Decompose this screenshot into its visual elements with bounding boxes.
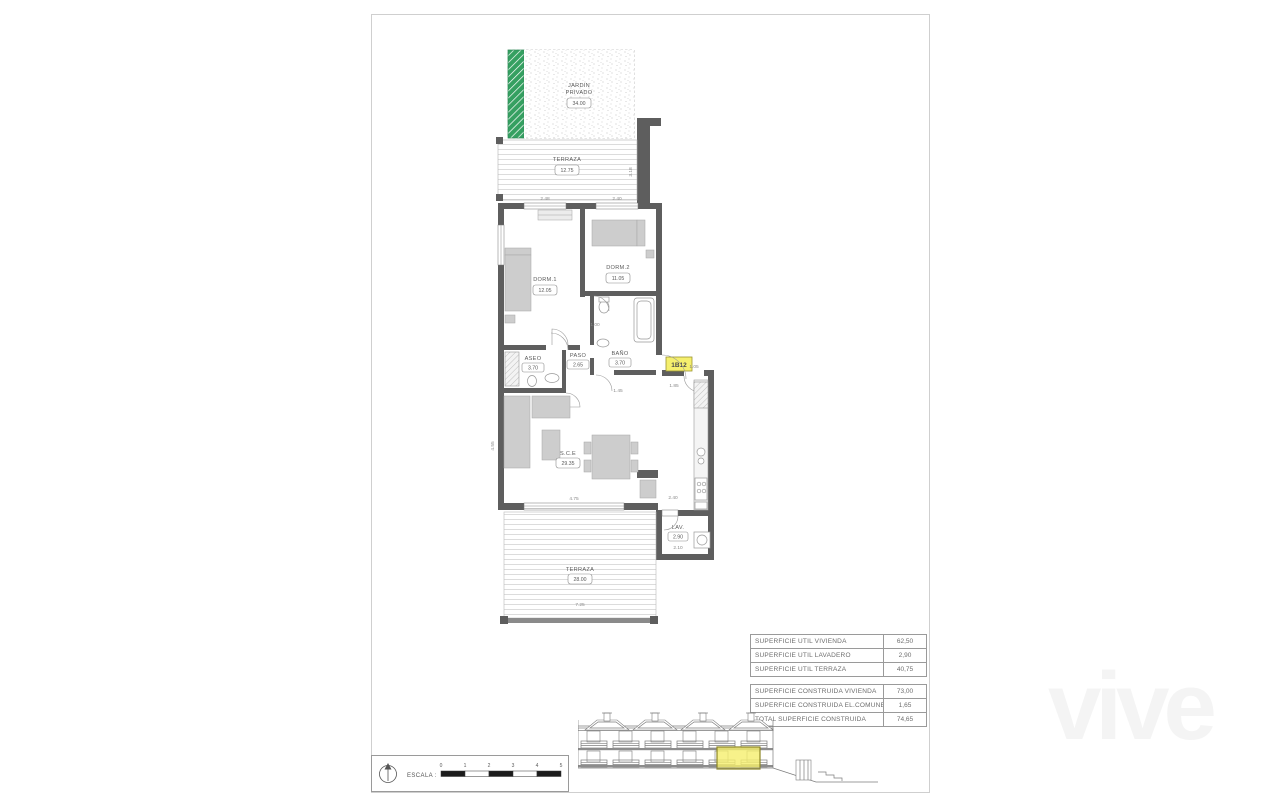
dim-kitchen: 2.40 bbox=[668, 495, 678, 501]
bano-label: BAÑO bbox=[611, 350, 628, 357]
dim-kitchen-door: 1.05 bbox=[689, 364, 699, 370]
dim-lav: 2.10 bbox=[673, 545, 683, 551]
living-room: S.C.E 29.35 4.75 5.00 4.55 bbox=[490, 396, 656, 521]
scale-bar: ESCALA : 0 1 2 3 4 5 bbox=[371, 755, 569, 792]
highlighted-unit bbox=[717, 747, 760, 769]
garden-area-value: 34.00 bbox=[573, 101, 586, 107]
scale-bar-segments bbox=[441, 771, 561, 777]
scale-tick: 2 bbox=[488, 763, 491, 769]
dim-terrace-width: 7.25 bbox=[575, 602, 585, 608]
row-label: SUPERFICIE CONSTRUIDA VIVIENDA bbox=[751, 685, 883, 698]
living-label: S.C.E bbox=[560, 451, 576, 457]
living-area: 29.35 bbox=[562, 461, 575, 467]
toilet-room: ASEO 3.70 bbox=[505, 352, 559, 387]
row-label: SUPERFICIE UTIL VIVIENDA bbox=[751, 635, 883, 648]
row-value: 2,90 bbox=[883, 649, 926, 662]
wall-segment bbox=[637, 118, 650, 206]
dim-terrace-depth: 3.18 bbox=[628, 167, 634, 177]
row-label: SUPERFICIE UTIL LAVADERO bbox=[751, 649, 883, 662]
dim-entry: 1.85 bbox=[669, 383, 679, 389]
table-row: SUPERFICIE CONSTRUIDA VIVIENDA 73,00 bbox=[751, 685, 926, 698]
dim-dorm1: 2.48 bbox=[540, 196, 550, 202]
bano-area: 3.70 bbox=[615, 361, 625, 367]
bedroom1-label: DORM.1 bbox=[533, 277, 557, 283]
upper-terrace: TERRAZA 12.75 3.18 bbox=[496, 137, 637, 201]
building-elevation bbox=[578, 708, 916, 792]
private-garden: JARDIN PRIVADO 34.00 bbox=[508, 50, 634, 138]
scale-tick: 4 bbox=[536, 763, 539, 769]
row-value: 73,00 bbox=[883, 685, 926, 698]
scale-tick: 1 bbox=[464, 763, 467, 769]
aseo-label: ASEO bbox=[525, 356, 542, 362]
row-label: SUPERFICIE UTIL TERRAZA bbox=[751, 663, 883, 676]
agency-watermark: vive bbox=[1048, 662, 1280, 792]
watermark-text: vive bbox=[1048, 653, 1211, 760]
lower-terrace-area: 28.00 bbox=[574, 577, 587, 583]
lower-terrace-label: TERRAZA bbox=[566, 567, 594, 573]
dim-living: 4.75 bbox=[569, 496, 579, 502]
table-row: SUPERFICIE UTIL VIVIENDA 62,50 bbox=[751, 635, 926, 648]
scale-tick: 0 bbox=[440, 763, 443, 769]
dim-hall: 1.45 bbox=[613, 388, 623, 394]
bedroom1-area: 12.05 bbox=[539, 288, 552, 294]
table-row: SUPERFICIE UTIL TERRAZA 40,75 bbox=[751, 662, 926, 676]
util-surface-table: SUPERFICIE UTIL VIVIENDA 62,50 SUPERFICI… bbox=[750, 634, 927, 677]
dim-dorm2: 2.40 bbox=[612, 196, 622, 202]
scale-tick: 5 bbox=[560, 763, 563, 769]
bedroom2-label: DORM.2 bbox=[606, 265, 630, 271]
table-row: SUPERFICIE UTIL LAVADERO 2,90 bbox=[751, 648, 926, 662]
garden-hedge-hatch bbox=[508, 50, 524, 138]
bedroom2-area: 11.05 bbox=[612, 276, 625, 282]
lav-area: 2.90 bbox=[673, 535, 683, 541]
upper-terrace-area: 12.75 bbox=[561, 168, 574, 174]
dim-paso: 1.00 bbox=[590, 322, 600, 328]
floor-plan: JARDIN PRIVADO 34.00 TERRAZA 12.75 3.18 bbox=[488, 40, 720, 640]
paso-area: 2.65 bbox=[573, 363, 583, 369]
bathroom: BAÑO 3.70 1.45 bbox=[596, 297, 654, 394]
row-value: 62,50 bbox=[883, 635, 926, 648]
kitchen: 2.40 bbox=[668, 380, 708, 510]
garden-label-line2: PRIVADO bbox=[566, 90, 593, 96]
aseo-area: 3.70 bbox=[528, 366, 538, 372]
scale-tick: 3 bbox=[512, 763, 515, 769]
upper-terrace-label: TERRAZA bbox=[553, 157, 581, 163]
laundry-room: LAV. 2.90 2.10 bbox=[664, 516, 710, 551]
row-value: 40,75 bbox=[883, 663, 926, 676]
lower-terrace: TERRAZA 28.00 7.25 bbox=[500, 512, 658, 624]
bedroom-1: DORM.1 12.05 2.48 bbox=[505, 196, 572, 323]
garden-label-line1: JARDIN bbox=[568, 83, 590, 89]
paso-label: PASO bbox=[570, 353, 587, 359]
unit-tag-text: 1B12 bbox=[671, 362, 687, 369]
scale-label: ESCALA : bbox=[407, 773, 437, 779]
dim-living-depth: 4.55 bbox=[490, 441, 496, 451]
